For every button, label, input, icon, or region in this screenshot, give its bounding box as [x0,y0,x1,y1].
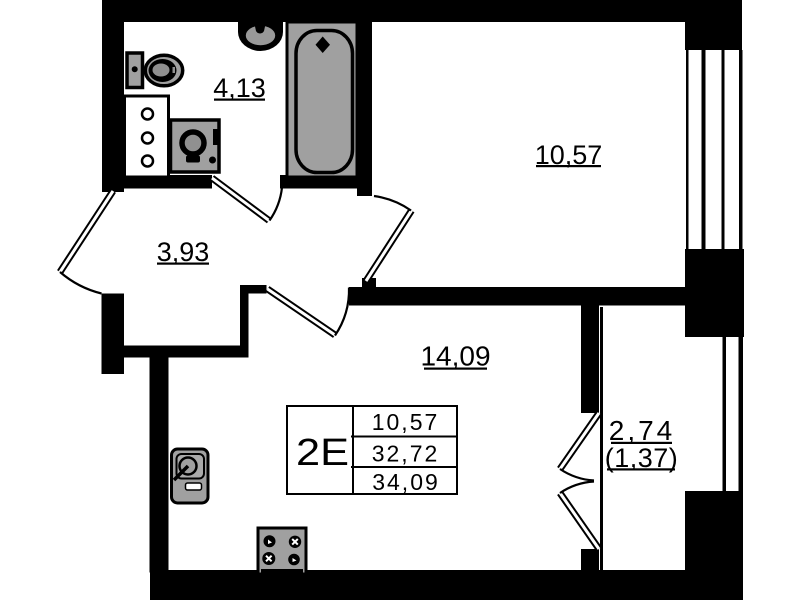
svg-text:10,57: 10,57 [372,409,440,435]
svg-text:2E: 2E [296,432,349,474]
svg-text:32,72: 32,72 [372,441,440,467]
svg-text:14,09: 14,09 [420,341,490,372]
svg-text:2,74: 2,74 [609,415,676,446]
svg-text:34,09: 34,09 [372,469,440,495]
